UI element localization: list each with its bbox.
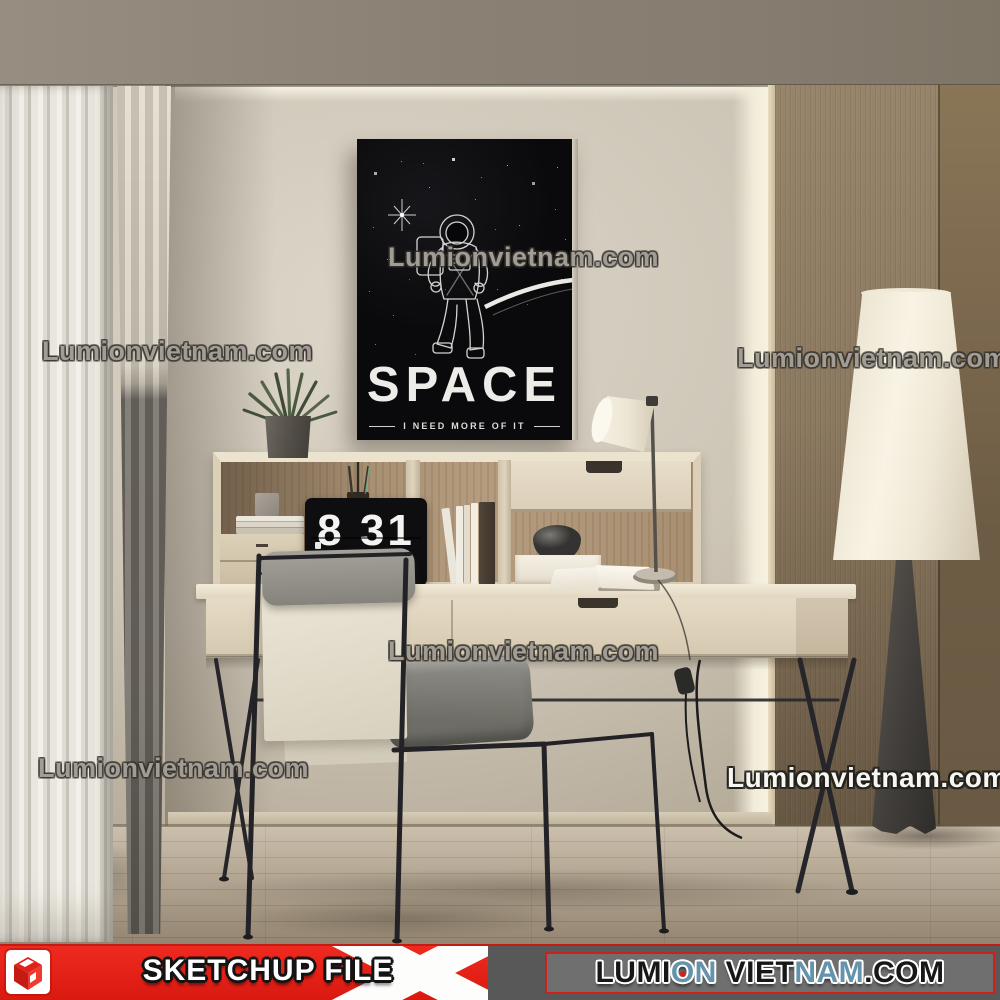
site-letter-group: VIET: [717, 956, 795, 989]
flip-clock-split-line: [311, 537, 421, 539]
hutch-drawer-handle: [586, 461, 622, 473]
poster-canvas-edge: [572, 139, 578, 440]
open-book: [552, 564, 656, 592]
site-letter-group: NAM: [794, 956, 864, 989]
plant-pot: [262, 416, 314, 458]
chair-headrest: [261, 548, 415, 606]
watermark: Lumionvietnam.com: [388, 242, 659, 273]
clock-dot: [315, 542, 321, 549]
site-name: LUMION VIETNAM.COM: [595, 956, 944, 990]
watermark: Lumionvietnam.com: [737, 343, 1000, 374]
site-letter-group: .COM: [864, 956, 944, 989]
interior-render-scene: SPACE I NEED MORE OF IT 8 31: [0, 0, 1000, 1000]
bottom-banner: SKETCHUP FILE LUMION VIETNAM.COM: [0, 944, 1000, 1000]
desk-side-panel: [796, 598, 848, 658]
site-panel: LUMION VIETNAM.COM: [545, 952, 995, 994]
space-poster: SPACE I NEED MORE OF IT: [357, 139, 578, 440]
book-page-right: [595, 565, 654, 590]
watermark: Lumionvietnam.com: [42, 336, 313, 367]
watermark: Lumionvietnam.com: [38, 753, 309, 784]
ceiling: [0, 0, 1000, 86]
poster-title: SPACE: [357, 357, 572, 413]
site-letter-group: N: [695, 956, 717, 989]
site-letter-group: O: [671, 956, 695, 989]
site-letter-group: LUMI: [595, 956, 670, 989]
chair-floor-shadow: [238, 898, 568, 938]
sketchup-logo-icon: [6, 950, 50, 994]
pens: [340, 460, 380, 496]
watermark-white: Lumionvietnam.com: [727, 762, 1000, 794]
logo-dot: [680, 971, 686, 977]
standing-book: [464, 505, 470, 585]
poster-canvas: SPACE I NEED MORE OF IT: [357, 139, 572, 440]
wood-panel-lit-edge: [768, 85, 775, 828]
desk-drawer-handle: [578, 598, 618, 608]
standing-book: [471, 503, 478, 585]
standing-book-dark: [479, 502, 495, 585]
watermark: Lumionvietnam.com: [388, 636, 659, 667]
stacked-books: [236, 516, 304, 534]
poster-tagline: I NEED MORE OF IT: [357, 421, 572, 431]
standing-book: [456, 506, 463, 585]
chair-back-panel: [262, 594, 408, 741]
hutch-divider: [498, 460, 511, 584]
sheer-curtain: [0, 86, 113, 942]
wall-lit-strip: [733, 85, 771, 828]
sketchup-file-label: SKETCHUP FILE: [52, 944, 484, 998]
storage-box: [255, 493, 279, 516]
